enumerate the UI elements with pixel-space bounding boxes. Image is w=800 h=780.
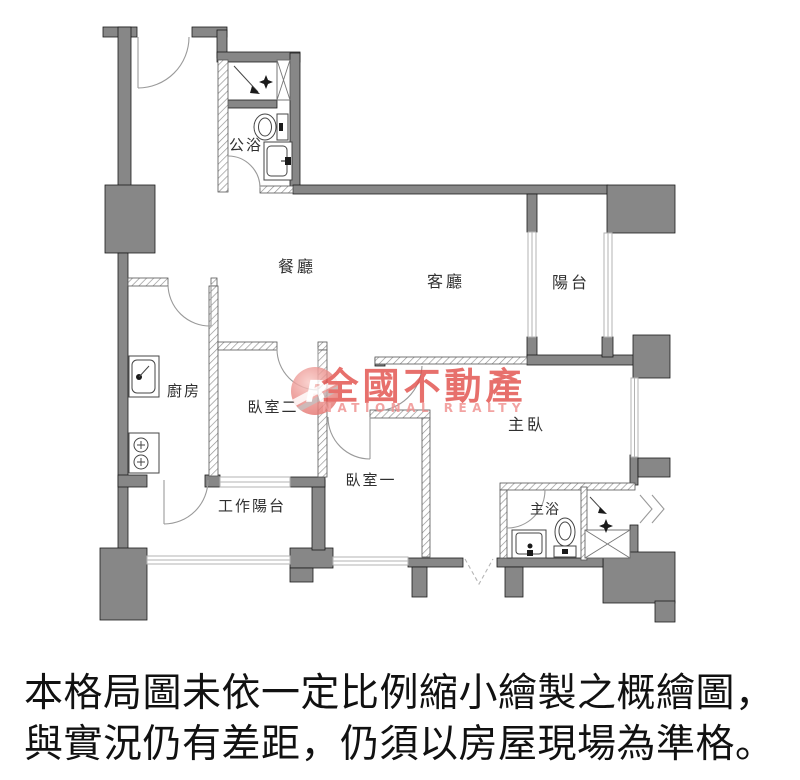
stove-icon [129,433,159,473]
wall-bedroom2-top [218,342,277,350]
wall-workbalcony-corner-ext [290,568,313,582]
wall-workbalcony-right-top [290,477,325,487]
floorplan-drawing: 公浴 餐廳 客廳 陽台 廚房 臥室二 臥室一 主臥 主浴 工作陽台 R 全國不動… [0,0,800,780]
disclaimer-line2: 與實況仍有差距，仍須以房屋現場為準格。 [24,722,775,767]
window-balcony-right [604,233,612,337]
pillar-bottom-stub-center [412,567,427,597]
pillar-bottom-left [100,548,147,620]
wall-left-lower [118,253,128,553]
pillar-bottom-stub-right [505,567,523,597]
label-dining: 餐廳 [278,257,316,276]
wall-workbalcony-right-arm [312,480,325,550]
label-master-bedroom: 主臥 [508,415,546,434]
wall-kitchen-right [209,286,218,476]
floorplan-page: 公浴 餐廳 客廳 陽台 廚房 臥室二 臥室一 主臥 主浴 工作陽台 R 全國不動… [0,0,800,780]
duct-shaft-icon [277,60,290,100]
window-workbalcony-bottom [147,556,290,564]
wall-balcony-bottom [527,355,637,365]
wall-workbalcony-corner [290,548,333,568]
kitchen-sink-icon [129,356,159,397]
wall-main-top [293,185,608,194]
label-work-balcony: 工作陽台 [218,497,286,515]
wall-living-balcony-stub-top [527,194,537,232]
watermark: R 全國不動產 NATIONAL REALTY [290,365,527,415]
wall-master-top [375,357,527,364]
window-bedroom2-workbalcony [220,477,290,487]
label-public-bath: 公浴 [229,136,263,154]
bathtub-icon [585,530,630,558]
wall-bottom-center [408,558,463,567]
master-toilet-icon [554,518,576,557]
wall-kitchen-top-a [128,278,168,286]
pillar-right-mid [633,335,670,378]
pillar-top-right [607,185,675,233]
watermark-brand-en: NATIONAL REALTY [322,401,526,415]
label-bedroom1: 臥室一 [345,471,396,489]
wall-shower-partition [227,100,277,108]
wall-workbalcony-left-stub [118,475,147,487]
wall-bath-left [218,60,228,192]
wall-bath-bottom [260,186,293,193]
label-master-bath: 主浴 [530,502,560,518]
label-bedroom2: 臥室二 [247,398,298,416]
wall-kitchen-top-b [211,278,217,286]
wall-bedroom1-right [422,418,430,557]
wall-masterbath-top [500,483,635,490]
pillar-bottom-right-ext [655,601,675,622]
label-balcony: 陽台 [552,273,590,292]
wall-living-balcony-stub-bottom [527,337,537,357]
window-master-bedroom [631,378,638,457]
disclaimer-line1: 本格局圖未依一定比例縮小繪製之概繪圖， [24,671,775,716]
window-bedroom1-bottom [333,557,408,565]
label-living: 客廳 [427,272,465,291]
window-balcony-left [528,232,536,337]
wall-balcony-right-stub [602,337,613,357]
pillar-right-stub [638,458,670,477]
label-kitchen: 廚房 [167,382,201,400]
pillar-top-left [105,185,155,253]
wall-bedroom2-top-corner [318,342,327,350]
wall-masterbath-left [500,490,507,558]
washbasin-icon [264,142,292,180]
wall-master-right-upper [630,455,638,485]
master-washbasin-icon [512,530,546,558]
pillar-bottom-right [603,552,675,603]
wall-left-upper [118,27,131,187]
